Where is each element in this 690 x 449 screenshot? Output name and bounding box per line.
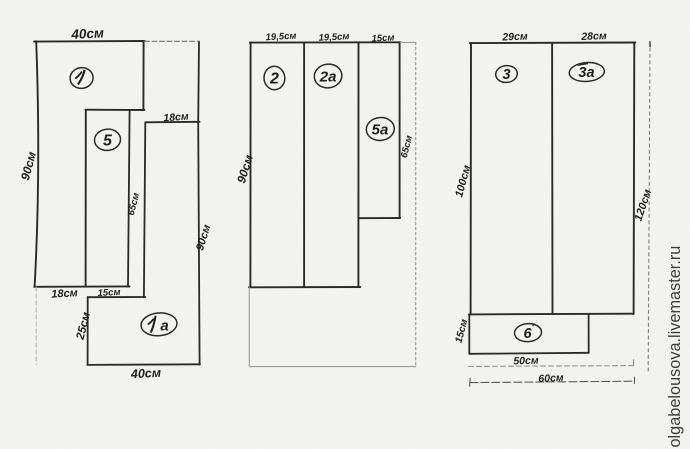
svg-text:40см: 40см	[70, 25, 104, 42]
svg-text:olgabelousova.livemaster.ru: olgabelousova.livemaster.ru	[666, 246, 684, 448]
svg-text:2a: 2a	[319, 69, 337, 86]
svg-text:19,5см: 19,5см	[265, 31, 296, 44]
svg-text:5a: 5a	[372, 122, 389, 139]
svg-text:a: a	[160, 318, 168, 335]
svg-text:50см: 50см	[513, 355, 539, 368]
svg-text:2: 2	[269, 71, 279, 88]
svg-text:29см: 29см	[501, 31, 528, 44]
svg-text:40см: 40см	[130, 366, 162, 382]
svg-text:5: 5	[103, 133, 113, 150]
svg-text:3a: 3a	[578, 65, 594, 81]
svg-text:18см: 18см	[51, 287, 78, 300]
svg-text:6: 6	[523, 326, 532, 342]
svg-text:15см: 15см	[97, 287, 120, 299]
svg-text:60см: 60см	[538, 372, 564, 385]
svg-text:19,5см: 19,5см	[318, 31, 349, 44]
svg-text:15см: 15см	[371, 32, 394, 44]
svg-text:18см: 18см	[163, 111, 189, 125]
svg-text:28см: 28см	[580, 30, 607, 43]
svg-text:3: 3	[502, 67, 510, 83]
